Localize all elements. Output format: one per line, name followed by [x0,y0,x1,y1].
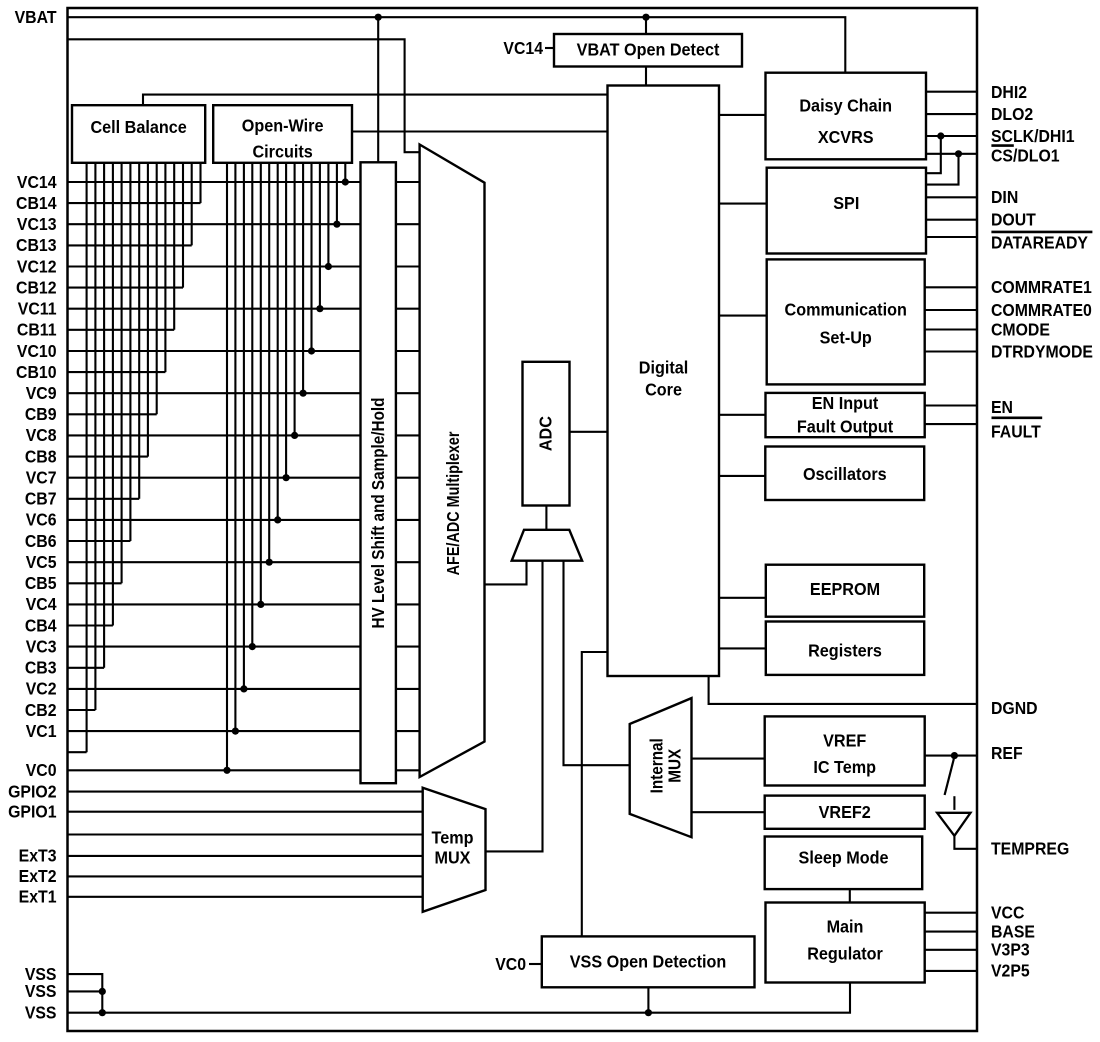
svg-text:VC5: VC5 [26,552,57,572]
svg-text:VC2: VC2 [26,679,57,699]
svg-text:DTRDYMODE: DTRDYMODE [991,341,1093,361]
svg-text:HV Level Shift and Sample/Hold: HV Level Shift and Sample/Hold [368,397,388,628]
svg-text:DOUT: DOUT [991,210,1036,230]
svg-text:Daisy Chain: Daisy Chain [799,96,892,116]
svg-text:CB12: CB12 [16,277,56,297]
svg-text:CB13: CB13 [16,235,56,255]
svg-text:CB14: CB14 [16,193,57,213]
svg-text:MUX: MUX [435,848,472,868]
svg-text:Open-Wire: Open-Wire [242,116,324,136]
svg-text:SCLK/DHI1: SCLK/DHI1 [991,126,1075,146]
svg-text:ExT3: ExT3 [19,846,57,866]
svg-text:ADC: ADC [536,416,556,451]
svg-text:SPI: SPI [833,193,859,213]
svg-text:VC4: VC4 [26,594,57,614]
svg-text:CMODE: CMODE [991,319,1050,339]
svg-text:Sleep Mode: Sleep Mode [799,848,889,868]
svg-text:MUX: MUX [664,749,684,783]
svg-text:AFE/ADC Multiplexer: AFE/ADC Multiplexer [444,431,464,575]
svg-text:DIN: DIN [991,187,1018,207]
svg-text:VSS: VSS [25,1003,57,1023]
svg-text:VC6: VC6 [26,510,57,530]
svg-text:FAULT: FAULT [991,422,1041,442]
svg-text:Regulator: Regulator [807,944,883,964]
svg-text:EN Input: EN Input [812,393,879,413]
svg-text:Registers: Registers [808,641,882,661]
svg-text:COMMRATE0: COMMRATE0 [991,300,1092,320]
svg-text:Oscillators: Oscillators [803,464,887,484]
svg-text:Main: Main [827,917,864,937]
svg-text:CB3: CB3 [25,658,57,678]
svg-text:GPIO1: GPIO1 [8,802,56,822]
svg-text:Communication: Communication [785,300,907,320]
svg-text:ExT2: ExT2 [19,866,57,886]
svg-text:Digital: Digital [639,358,688,378]
svg-text:VC11: VC11 [18,299,57,319]
svg-text:Cell Balance: Cell Balance [90,117,186,137]
svg-text:Set-Up: Set-Up [820,328,872,348]
svg-text:VBAT Open Detect: VBAT Open Detect [577,40,720,60]
svg-text:VC7: VC7 [26,468,57,488]
svg-text:VC13: VC13 [17,214,57,234]
svg-text:Fault Output: Fault Output [797,417,893,437]
svg-text:DHI2: DHI2 [991,82,1027,102]
svg-text:VC12: VC12 [17,256,57,276]
svg-text:VC8: VC8 [26,425,57,445]
svg-text:GPIO2: GPIO2 [8,781,56,801]
svg-text:VC0: VC0 [495,954,526,974]
svg-text:EEPROM: EEPROM [810,579,880,599]
svg-text:VREF2: VREF2 [819,802,871,822]
svg-text:CB7: CB7 [25,489,57,509]
svg-text:ExT1: ExT1 [19,887,57,907]
svg-text:VC3: VC3 [26,636,57,656]
svg-text:VC1: VC1 [26,721,57,741]
svg-text:XCVRS: XCVRS [818,127,874,147]
svg-text:BASE: BASE [991,921,1035,941]
svg-text:VC9: VC9 [26,383,57,403]
svg-text:VSS: VSS [25,981,57,1001]
svg-text:VC14: VC14 [17,172,57,192]
svg-text:VSS Open Detection: VSS Open Detection [570,952,726,972]
svg-text:V2P5: V2P5 [991,961,1030,981]
svg-text:CB6: CB6 [25,531,57,551]
svg-text:CB4: CB4 [25,615,57,635]
svg-text:TEMPREG: TEMPREG [991,838,1069,858]
svg-text:CB11: CB11 [17,320,57,340]
svg-text:DATAREADY: DATAREADY [991,232,1089,252]
svg-text:VC0: VC0 [26,760,57,780]
svg-text:CS/DLO1: CS/DLO1 [991,146,1060,166]
svg-text:VC14: VC14 [503,38,543,58]
svg-text:IC Temp: IC Temp [813,757,876,777]
svg-text:CB9: CB9 [25,404,57,424]
svg-text:VBAT: VBAT [15,7,58,27]
svg-text:V3P3: V3P3 [991,940,1030,960]
svg-text:REF: REF [991,743,1023,763]
svg-text:CB5: CB5 [25,573,57,593]
svg-text:DLO2: DLO2 [991,104,1033,124]
svg-text:EN: EN [991,397,1013,417]
svg-text:Temp: Temp [432,828,474,848]
svg-text:VC10: VC10 [17,341,57,361]
svg-text:Core: Core [645,380,682,400]
svg-text:CB8: CB8 [25,446,57,466]
svg-text:COMMRATE1: COMMRATE1 [991,277,1092,297]
svg-text:VCC: VCC [991,903,1024,923]
svg-text:Circuits: Circuits [252,142,312,162]
svg-text:DGND: DGND [991,698,1038,718]
svg-text:VREF: VREF [823,731,866,751]
svg-text:CB10: CB10 [16,362,56,382]
svg-text:CB2: CB2 [25,700,57,720]
